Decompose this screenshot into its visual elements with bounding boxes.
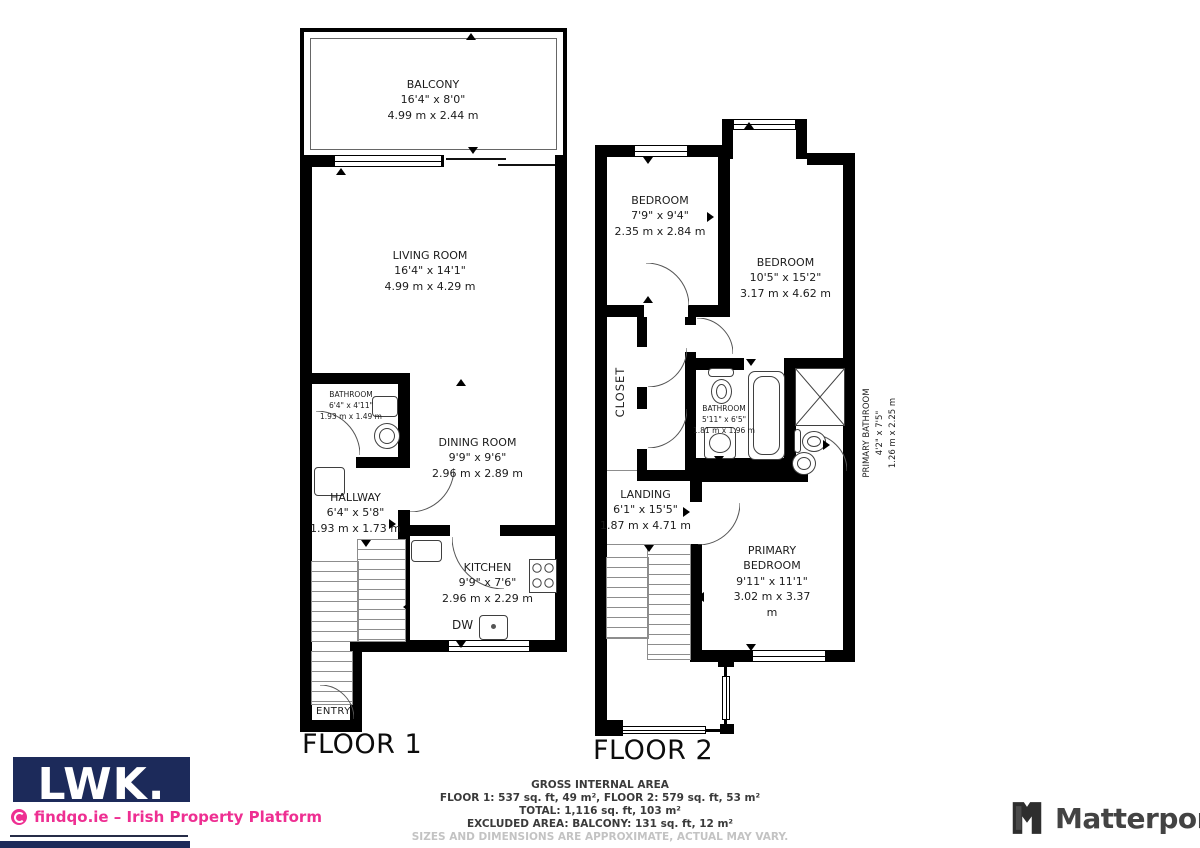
wall [637,317,647,347]
brand-strip [0,841,190,848]
room-name: BEDROOM [698,255,873,270]
arrow-marker [744,122,754,129]
door-arc [697,318,733,354]
wall [845,470,855,482]
window [752,650,826,662]
wall [595,720,623,736]
arrow-marker [746,359,756,366]
stair-divider [647,545,648,659]
room-dim-ft: 9'9" x 7'6" [405,575,570,590]
dishwasher-knob-icon [491,624,496,629]
platform-text: findqo.ie – Irish Property Platform [34,808,322,826]
toilet-icon [711,379,732,404]
summary-title: GROSS INTERNAL AREA [300,779,900,792]
staircase [648,545,690,659]
arrow-marker [598,212,605,222]
agent-logo: LWK. [13,757,190,802]
wall [300,155,312,732]
arrow-marker [823,440,830,450]
provider-text: Matterport [1055,802,1200,835]
room-dim-m: 1.81 m x 1.96 m [678,426,770,437]
room-dim-ft: 6'4" x 4'11" [303,401,399,412]
window [722,676,730,720]
toilet-tank-icon [708,368,734,377]
wall [718,653,734,667]
matterport-icon [1008,799,1046,837]
summary-total: TOTAL: 1,116 sq. ft, 103 m² [300,805,900,818]
room-name: LIVING ROOM [330,248,530,263]
toilet-tank-icon [794,429,801,453]
area-summary: GROSS INTERNAL AREA FLOOR 1: 537 sq. ft,… [300,779,900,844]
stair-divider [357,540,358,641]
room-name: KITCHEN [405,560,570,575]
room-dim-m: 4.99 m x 2.44 m [333,108,533,123]
summary-disclaimer: SIZES AND DIMENSIONS ARE APPROXIMATE, AC… [300,831,900,844]
wall [690,544,702,662]
room-dim-ft: 16'4" x 14'1" [330,263,530,278]
wall [637,470,696,481]
arrow-marker [557,474,564,484]
wall [300,28,567,32]
arrow-marker [466,33,476,40]
arrow-marker [302,421,309,431]
arrow-marker [644,545,654,552]
room-label-primary-bathroom: PRIMARY BATHROOM 4'2" x 7'5" 1.26 m x 2.… [861,365,903,501]
window [614,726,706,734]
room-name: PRIMARY BATHROOM [861,365,874,501]
floorplan: BALCONY 16'4" x 8'0" 4.99 m x 2.44 m LIV… [0,0,1200,848]
sink-icon [792,452,816,475]
slider-door-panel [498,164,556,166]
floor2-title: FLOOR 2 [593,735,713,766]
room-label-primary-bedroom: PRIMARY BEDROOM 9'11" x 11'1" 3.02 m x 3… [727,543,817,620]
arrow-marker [361,540,371,547]
window [733,119,796,130]
platform-branding: findqo.ie – Irish Property Platform [11,808,322,826]
arrow-marker [403,602,410,612]
room-dim-m: 2.96 m x 2.89 m [390,466,565,481]
room-dim-m: 1.93 m x 1.49 m [303,412,399,423]
room-dim-m: 2.35 m x 2.84 m [585,224,735,239]
room-label-closet: CLOSET [613,352,629,432]
wall [796,119,807,159]
wall [637,449,647,470]
arrow-marker [643,296,653,303]
room-dim-m: 1.26 m x 2.25 m [887,365,900,501]
arrow-marker [683,507,690,517]
room-name: PRIMARY BEDROOM [727,543,817,574]
arrow-marker [786,440,793,450]
room-label-bathroom-f2: BATHROOM 5'11" x 6'5" 1.81 m x 1.96 m [678,404,770,437]
arrow-marker [697,592,704,602]
slider-door-panel [446,158,506,160]
arrow-marker [843,592,850,602]
arrow-marker [456,379,466,386]
room-dim-ft: 5'11" x 6'5" [678,415,770,426]
room-dim-m: 4.99 m x 4.29 m [330,279,530,294]
arrow-marker [643,157,653,164]
room-label-hallway: HALLWAY 6'4" x 5'8" 1.93 m x 1.73 m [288,490,423,536]
wall [688,305,730,317]
room-name: BATHROOM [303,390,399,401]
room-label-bathroom-f1: BATHROOM 6'4" x 4'11" 1.93 m x 1.49 m [303,390,399,423]
room-dim-m: 1.87 m x 4.71 m [578,518,713,533]
arrow-marker [707,212,714,222]
wall [300,28,304,159]
shower-icon [795,368,845,426]
wall [826,650,855,662]
staircase [358,540,405,641]
dishwasher-label: DW [452,618,473,632]
wall [720,724,734,734]
wall [563,28,567,159]
room-name: BALCONY [333,77,533,92]
agent-logo-text: LWK. [13,761,190,802]
window [634,145,688,157]
staircase [607,558,648,638]
window [334,155,442,167]
room-dim-ft: 9'11" x 11'1" [727,574,817,589]
wall [500,525,567,536]
arrow-marker [714,456,724,463]
arrow-marker [336,168,346,175]
arrow-marker [598,507,605,517]
staircase [312,562,358,641]
arrow-marker [746,644,756,651]
room-dim-m: 3.02 m x 3.37 m [727,589,817,620]
arrow-marker [556,602,563,612]
cabinet-icon [411,540,442,562]
room-label-kitchen: KITCHEN 9'9" x 7'6" 2.96 m x 2.29 m [405,560,570,606]
arrow-marker [389,519,396,529]
arrow-marker [456,641,466,648]
wall [685,317,696,325]
divider [10,835,188,837]
wall [722,119,733,159]
summary-floors: FLOOR 1: 537 sq. ft, 49 m², FLOOR 2: 579… [300,792,900,805]
room-name: LANDING [578,487,713,502]
floor1-title: FLOOR 1 [302,729,422,760]
room-label-living-room: LIVING ROOM 16'4" x 14'1" 4.99 m x 4.29 … [330,248,530,294]
room-name: BATHROOM [678,404,770,415]
room-dim-ft: 9'9" x 9'6" [390,450,565,465]
entry-label: ENTRY [316,706,351,717]
arrow-marker [302,519,309,529]
room-dim-m: 2.96 m x 2.29 m [405,591,570,606]
wall [637,387,647,409]
arrow-marker [386,374,396,381]
summary-excluded: EXCLUDED AREA: BALCONY: 131 sq. ft, 12 m… [300,818,900,831]
room-name: BEDROOM [585,193,735,208]
room-name: HALLWAY [288,490,423,505]
room-label-dining-room: DINING ROOM 9'9" x 9'6" 2.96 m x 2.89 m [390,435,565,481]
findqo-icon [11,809,27,825]
provider-logo: Matterport [1008,799,1200,837]
wall [595,305,644,317]
room-name: DINING ROOM [390,435,565,450]
room-dim-m: 3.17 m x 4.62 m [698,286,873,301]
room-dim-ft: 16'4" x 8'0" [333,92,533,107]
room-label-balcony: BALCONY 16'4" x 8'0" 4.99 m x 2.44 m [333,77,533,123]
closet-line [607,470,637,471]
arrow-marker [468,147,478,154]
arrow-marker [843,278,850,288]
arrow-marker [557,421,564,431]
room-dim-ft: 4'2" x 7'5" [874,365,887,501]
door-arc [648,348,687,387]
